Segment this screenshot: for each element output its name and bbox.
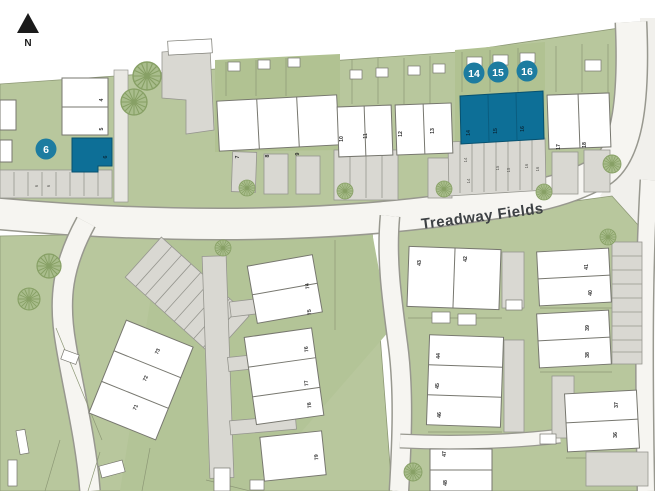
plot-number: 39 — [585, 325, 591, 331]
plot-number: 38 — [585, 352, 591, 358]
tree-icon — [133, 62, 161, 90]
plot-number: 14 — [466, 130, 472, 136]
bay-label: 16 — [535, 166, 540, 171]
plot-number: 12 — [398, 131, 404, 137]
plot-number: 8 — [265, 154, 271, 157]
site-plan-map: 4 5 6 7 8 9 10 11 12 13 14 15 16 17 18 7… — [0, 0, 655, 491]
tree-icon — [404, 463, 422, 481]
badge-label: 6 — [43, 144, 49, 156]
plot-number: 11 — [363, 133, 369, 139]
tree-icon — [121, 89, 147, 115]
plot-badge-16[interactable]: 16 — [517, 61, 538, 82]
site-plan-page: 4 5 6 7 8 9 10 11 12 13 14 15 16 17 18 7… — [0, 0, 655, 491]
highlighted-plots-14-15-16[interactable] — [460, 91, 544, 144]
plot-number: 16 — [520, 126, 526, 132]
building-plots-47-48 — [430, 449, 492, 491]
bay-label: 14 — [463, 157, 468, 162]
plot-number: 41 — [584, 264, 590, 270]
bay-label: 15 — [495, 165, 500, 170]
plot-number: 37 — [614, 402, 620, 408]
road-east-edge — [645, 180, 649, 491]
building-plots-17-18 — [547, 93, 611, 149]
badge-label: 15 — [492, 67, 504, 79]
plot-number: 74 — [305, 283, 312, 290]
building-plots-76-78 — [244, 328, 324, 425]
plot-number: 4 — [99, 98, 105, 101]
bay-label: 15 — [506, 167, 511, 172]
building-plots-40-41 — [537, 248, 612, 306]
badge-label: 16 — [521, 66, 533, 78]
bay-label: 14 — [466, 178, 471, 183]
plot-number: 42 — [463, 256, 469, 262]
tree-icon — [600, 229, 616, 245]
plot-number: 43 — [417, 260, 423, 266]
lane-central — [504, 340, 524, 432]
plot-number: 40 — [588, 290, 594, 296]
plot-number: 46 — [437, 412, 443, 418]
plot-number: 18 — [582, 142, 588, 148]
tree-icon — [215, 240, 231, 256]
building-plots-38-39 — [537, 310, 612, 368]
tree-icon — [37, 254, 61, 278]
north-label: N — [24, 38, 31, 49]
bay-label: 16 — [524, 163, 529, 168]
plot-number: 44 — [436, 353, 442, 359]
plot-number: 77 — [304, 380, 311, 387]
building-plots-12-13 — [395, 103, 453, 155]
plot-number: 76 — [304, 346, 311, 353]
tree-icon — [239, 180, 255, 196]
plot-number: 15 — [493, 128, 499, 134]
tree-icon — [603, 155, 621, 173]
plot-number: 17 — [556, 144, 562, 150]
plot-number: 47 — [442, 451, 448, 457]
plot-badge-6[interactable]: 6 — [36, 139, 57, 160]
plot-number: 6 — [103, 155, 109, 158]
plot-number: 78 — [307, 402, 314, 409]
plot-badge-15[interactable]: 15 — [488, 62, 509, 83]
building-plots-4-5 — [62, 78, 108, 135]
plot-number: 5 — [99, 127, 105, 130]
plot-number: 79 — [314, 454, 321, 461]
tree-icon — [337, 183, 353, 199]
plot-number: 45 — [435, 383, 441, 389]
plot-number: 75 — [307, 309, 314, 316]
building-plots-36-37 — [565, 390, 640, 452]
plot-number: 7 — [235, 155, 241, 158]
plot-number: 10 — [339, 136, 345, 142]
building-plots-10-11 — [337, 105, 393, 157]
plot-number: 13 — [430, 128, 436, 134]
building-plots-42-43 — [407, 246, 501, 309]
garage-court-east — [612, 242, 642, 364]
badge-label: 14 — [468, 68, 480, 80]
plot-number: 48 — [443, 480, 449, 486]
plot-number: 9 — [295, 152, 301, 155]
plot-badge-14[interactable]: 14 — [464, 63, 485, 84]
tree-icon — [436, 181, 452, 197]
road-south-cross — [400, 436, 560, 442]
tree-icon — [536, 184, 552, 200]
tree-icon — [18, 288, 40, 310]
building-plots-7-9 — [217, 95, 339, 151]
plot-number: 36 — [613, 432, 619, 438]
lane-north-west — [114, 70, 128, 202]
